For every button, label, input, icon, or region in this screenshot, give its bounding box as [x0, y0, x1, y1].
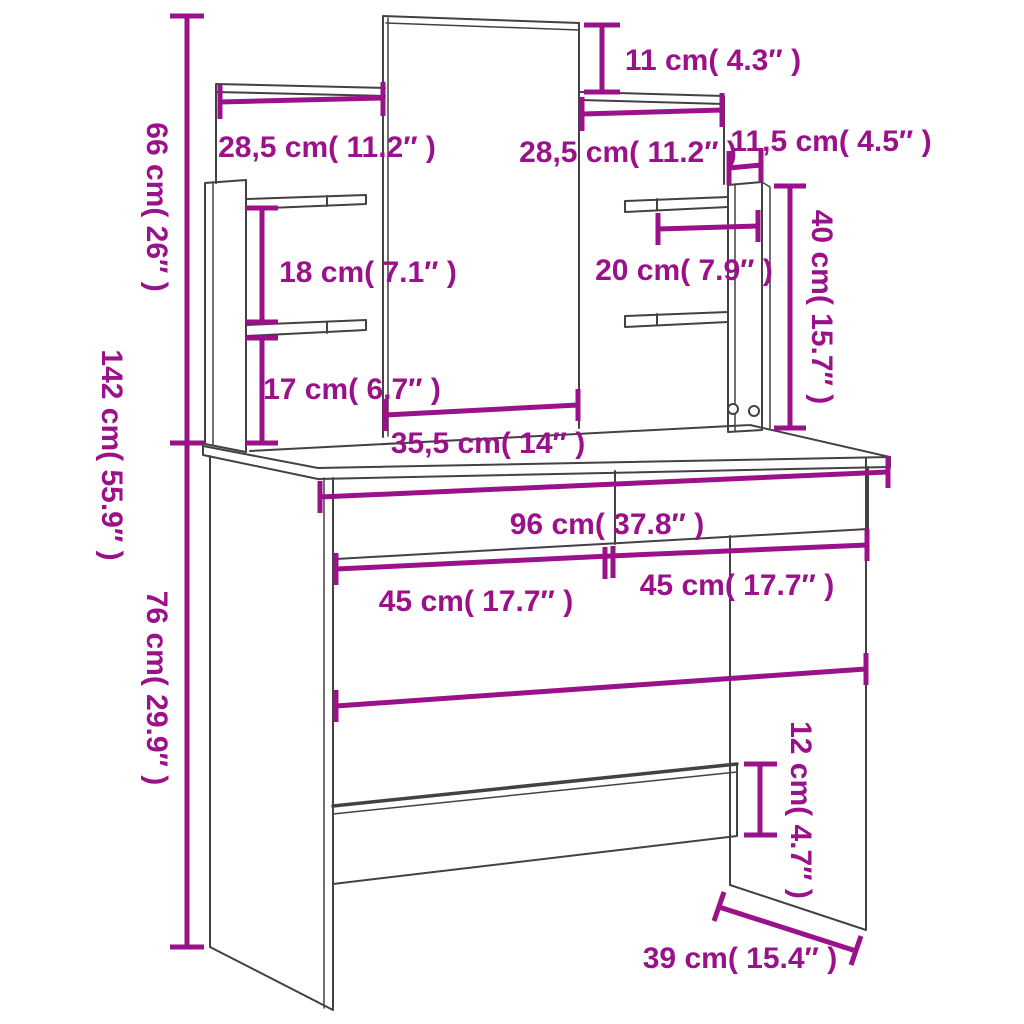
- label-left-drawer-width: 45 cm( 17.7″ ): [379, 585, 573, 618]
- dimension-labels: 66 cm( 26″ ) 142 cm( 55.9″ ) 76 cm( 29.9…: [95, 44, 932, 975]
- label-mirror-overhang: 11 cm( 4.3″ ): [625, 44, 801, 77]
- dim-line-left-shelf-gap: [246, 208, 278, 322]
- label-desk-height: 76 cm( 29.9″ ): [140, 591, 173, 785]
- right-side-panel-hutch: [728, 182, 770, 432]
- label-hutch-height: 66 cm( 26″ ): [140, 122, 173, 291]
- label-right-hutch-height: 40 cm( 15.7″ ): [805, 210, 838, 404]
- label-mirror-width: 35,5 cm( 14″ ): [391, 427, 585, 460]
- furniture-dimension-diagram: 66 cm( 26″ ) 142 cm( 55.9″ ) 76 cm( 29.9…: [0, 0, 1024, 1024]
- label-right-drawer-width: 45 cm( 17.7″ ): [640, 569, 834, 602]
- right-shelf-top: [625, 197, 728, 212]
- label-mirror-to-table: 17 cm( 6.7″ ): [263, 373, 441, 406]
- label-table-width: 96 cm( 37.8″ ): [510, 508, 704, 541]
- label-right-shelf-width: 28,5 cm( 11.2″ ): [519, 136, 737, 169]
- dim-line-right-shelf-depth: [658, 210, 758, 245]
- label-left-shelf-width: 28,5 cm( 11.2″ ): [218, 131, 436, 164]
- label-crossbar-height: 12 cm( 4.7″ ): [784, 721, 817, 899]
- label-side-panel-depth: 11,5 cm( 4.5″ ): [730, 125, 931, 158]
- dim-line-table-width: [320, 456, 888, 513]
- dim-line-base-span: [336, 653, 866, 722]
- left-leg-panel: [210, 456, 333, 1010]
- dim-line-right-shelf-width: [582, 93, 722, 131]
- screw-hole: [749, 406, 759, 416]
- label-right-shelf-depth: 20 cm( 7.9″ ): [595, 254, 773, 287]
- right-shelf-bottom: [625, 312, 728, 327]
- dim-line-mirror-overhang: [584, 25, 620, 92]
- dim-line-crossbar-height: [744, 764, 777, 835]
- left-side-panel: [205, 180, 246, 452]
- label-table-depth: 39 cm( 15.4″ ): [643, 942, 837, 975]
- crossbar: [333, 764, 737, 884]
- label-total-height: 142 cm( 55.9″ ): [95, 349, 128, 560]
- label-left-shelf-gap: 18 cm( 7.1″ ): [279, 256, 457, 289]
- diagram-canvas: 66 cm( 26″ ) 142 cm( 55.9″ ) 76 cm( 29.9…: [0, 0, 1024, 1024]
- dim-line-heights: [170, 16, 204, 947]
- dim-line-right-hutch-height: [774, 186, 806, 428]
- screw-hole: [728, 404, 738, 414]
